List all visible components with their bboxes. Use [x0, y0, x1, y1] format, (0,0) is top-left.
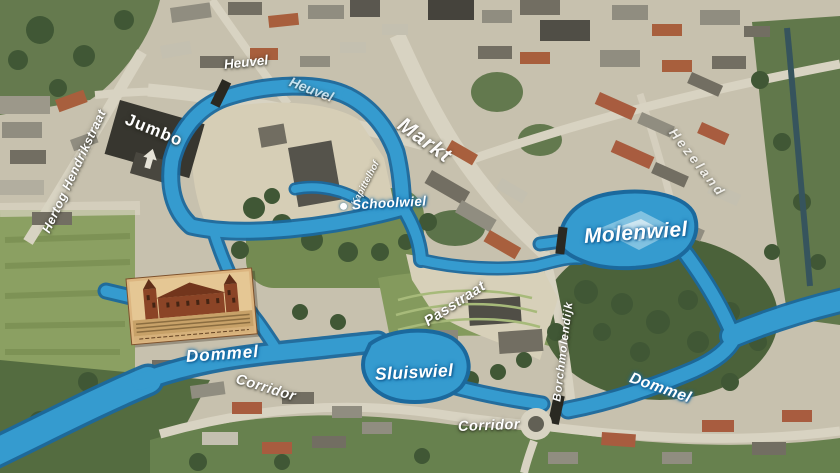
- label-hertog-hendrikstraat: Hertog Hendrikstraat: [40, 108, 108, 235]
- label-corridor-west: Corridor: [234, 372, 298, 404]
- label-corridor-east: Corridor: [458, 418, 520, 435]
- flood-map: Jumbo Hertog Hendrikstraat Heuvel Heuvel…: [0, 0, 840, 473]
- schoolwiel-marker-dot: [340, 203, 347, 210]
- label-jumbo: Jumbo: [123, 111, 186, 150]
- label-dommel-east: Dommel: [627, 370, 693, 406]
- label-heuvel-2: Heuvel: [287, 74, 335, 104]
- label-schoolwiel: Schoolwiel: [340, 194, 427, 212]
- label-borchmolendijk: Borchmolendijk: [552, 301, 576, 403]
- label-passtraat: Passtraat: [422, 279, 488, 329]
- label-hezeland: Hezeland: [666, 126, 728, 200]
- label-molenwiel: Molenwiel: [583, 219, 688, 247]
- label-markt: Markt: [394, 114, 456, 167]
- label-dommel-west: Dommel: [185, 343, 259, 365]
- schoolwiel-text: Schoolwiel: [352, 193, 427, 212]
- map-labels-layer: Jumbo Hertog Hendrikstraat Heuvel Heuvel…: [0, 0, 840, 473]
- label-heuvel-1: Heuvel: [223, 53, 268, 71]
- label-sluiswiel: Sluiswiel: [375, 362, 454, 384]
